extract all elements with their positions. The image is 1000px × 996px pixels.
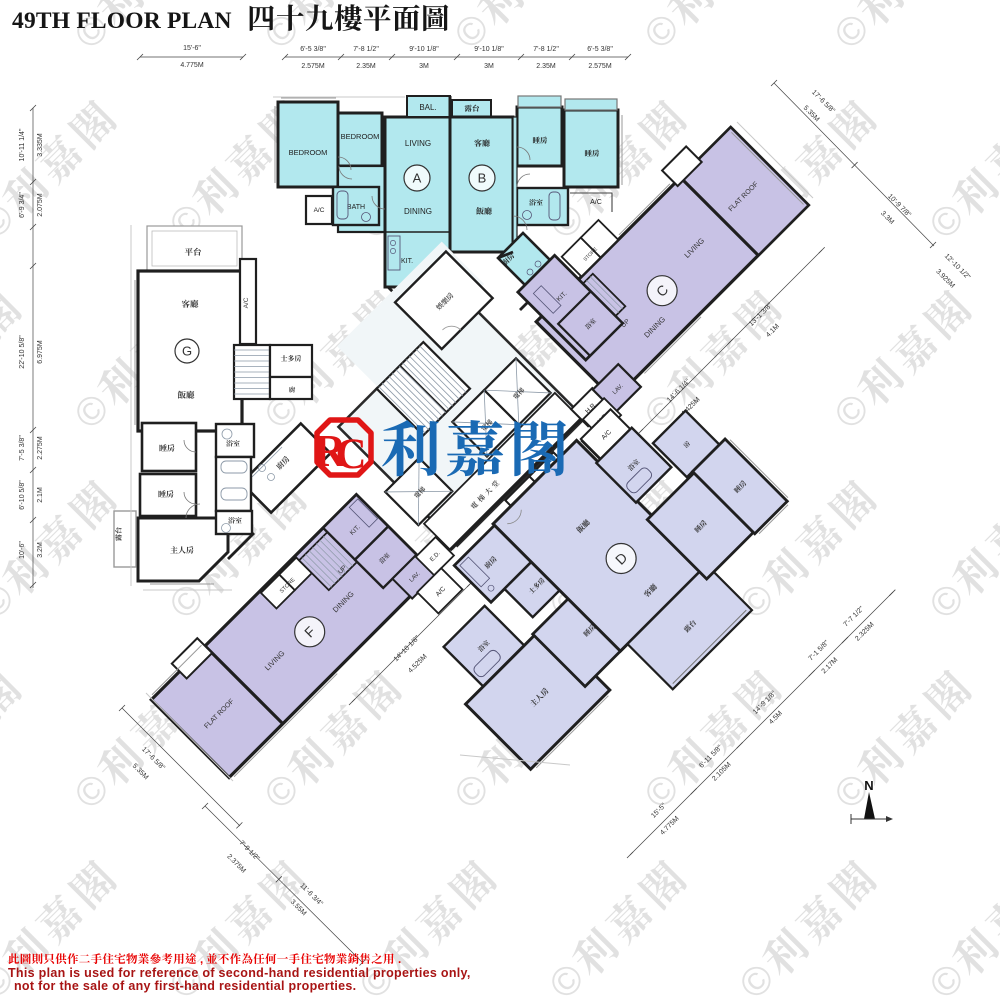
svg-text:BEDROOM: BEDROOM xyxy=(289,148,328,157)
svg-text:A: A xyxy=(413,171,422,186)
svg-text:BAL.: BAL. xyxy=(419,103,436,112)
svg-text:4.775M: 4.775M xyxy=(180,62,204,69)
svg-text:A/C: A/C xyxy=(314,207,325,214)
svg-text:3M: 3M xyxy=(484,63,494,70)
svg-text:6'-9 3/4": 6'-9 3/4" xyxy=(19,192,26,218)
svg-text:15'-6": 15'-6" xyxy=(183,45,201,52)
svg-text:2.575M: 2.575M xyxy=(588,63,612,70)
svg-text:7'-5 3/8": 7'-5 3/8" xyxy=(19,435,26,461)
svg-text:22'-10 5/8": 22'-10 5/8" xyxy=(19,335,26,369)
svg-text:6.975M: 6.975M xyxy=(37,340,44,364)
svg-text:2.1M: 2.1M xyxy=(37,487,44,503)
svg-text:A/C: A/C xyxy=(243,297,250,308)
svg-text:2.075M: 2.075M xyxy=(37,193,44,217)
svg-text:2.35M: 2.35M xyxy=(356,63,376,70)
svg-text:.: . xyxy=(398,954,401,966)
svg-text:6'-5 3/8": 6'-5 3/8" xyxy=(300,46,326,53)
svg-text:N: N xyxy=(864,778,873,793)
svg-text:49TH FLOOR PLAN: 49TH FLOOR PLAN xyxy=(12,8,232,34)
svg-text:A/C: A/C xyxy=(590,199,602,206)
svg-text:3.2M: 3.2M xyxy=(37,542,44,558)
svg-text:BATH: BATH xyxy=(347,204,365,211)
svg-text:,: , xyxy=(200,954,203,966)
svg-text:KIT.: KIT. xyxy=(401,258,413,265)
svg-text:3M: 3M xyxy=(419,63,429,70)
svg-text:DINING: DINING xyxy=(404,207,432,216)
svg-text:6'-10 5/8": 6'-10 5/8" xyxy=(19,480,26,510)
svg-text:7'-8 1/2": 7'-8 1/2" xyxy=(533,46,559,53)
svg-text:not for the sale of any first-: not for the sale of any first-hand resid… xyxy=(14,979,356,993)
svg-text:9'-10 1/8": 9'-10 1/8" xyxy=(409,46,439,53)
svg-text:LIVING: LIVING xyxy=(405,139,431,148)
svg-text:7'-8 1/2": 7'-8 1/2" xyxy=(353,46,379,53)
svg-text:3.335M: 3.335M xyxy=(37,133,44,157)
svg-text:B: B xyxy=(478,171,487,186)
svg-text:10'-11 1/4": 10'-11 1/4" xyxy=(19,128,26,161)
svg-text:10'-6": 10'-6" xyxy=(19,541,26,559)
svg-text:9'-10 1/8": 9'-10 1/8" xyxy=(474,46,504,53)
svg-text:2.575M: 2.575M xyxy=(301,63,325,70)
svg-text:BEDROOM: BEDROOM xyxy=(341,132,380,141)
svg-text:6'-5 3/8": 6'-5 3/8" xyxy=(587,46,613,53)
svg-text:This plan is used for referenc: This plan is used for reference of secon… xyxy=(8,966,471,980)
svg-text:2.35M: 2.35M xyxy=(536,63,556,70)
svg-text:2.275M: 2.275M xyxy=(37,436,44,460)
svg-text:G: G xyxy=(182,344,192,359)
